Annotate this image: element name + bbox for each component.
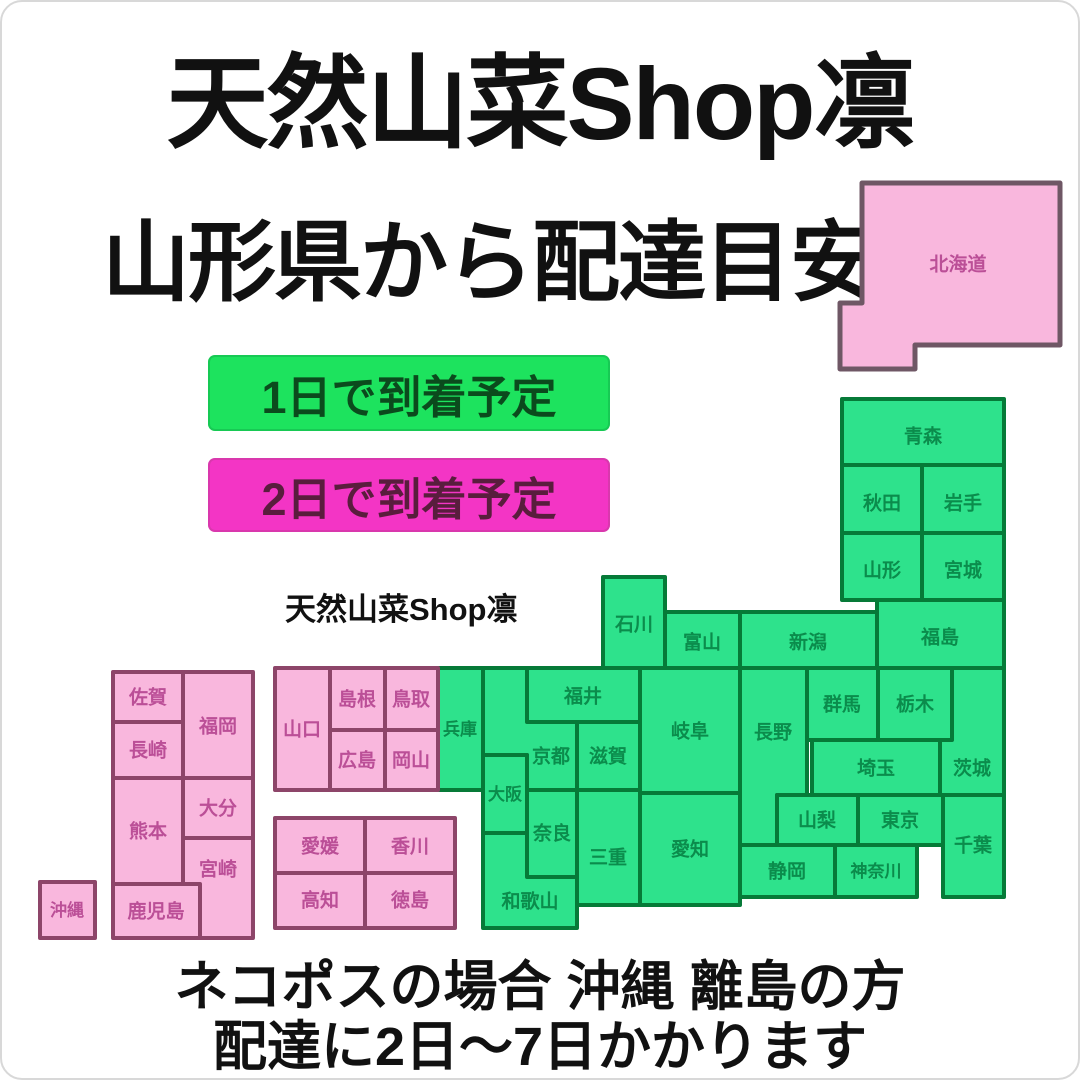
prefecture-akita: 秋田 (842, 465, 922, 533)
prefecture-osaka: 大阪 (483, 755, 527, 833)
prefecture-saitama: 埼玉 (812, 740, 940, 795)
prefecture-ehime: 愛媛 (275, 818, 365, 873)
prefecture-hyogo-label: 兵庫 (443, 719, 477, 739)
prefecture-chiba-label: 千葉 (954, 835, 993, 857)
prefecture-hiroshima: 広島 (330, 730, 385, 790)
prefecture-tokyo-label: 東京 (881, 809, 919, 832)
prefecture-kumamoto: 熊本 (113, 778, 183, 884)
prefecture-mie-label: 三重 (589, 847, 627, 869)
prefecture-kanagawa-label: 神奈川 (851, 861, 902, 881)
prefecture-shiga: 滋賀 (577, 722, 640, 790)
prefecture-hokkaido-shape (840, 183, 1060, 369)
prefecture-okinawa: 沖縄 (40, 882, 95, 938)
prefecture-fukui-label: 福井 (563, 685, 602, 708)
prefecture-miyazaki-label: 宮崎 (199, 858, 237, 881)
prefecture-ehime-label: 愛媛 (301, 835, 340, 858)
prefecture-kochi: 高知 (275, 873, 365, 928)
prefecture-gifu-label: 岐阜 (671, 720, 709, 743)
prefecture-shizuoka-label: 静岡 (768, 860, 806, 883)
prefecture-ibaraki-label: 茨城 (953, 757, 991, 780)
prefecture-kagawa: 香川 (365, 818, 455, 873)
prefecture-shimane-label: 島根 (338, 688, 376, 711)
prefecture-niigata-label: 新潟 (789, 631, 827, 654)
prefecture-oita-label: 大分 (199, 797, 237, 820)
prefecture-niigata: 新潟 (740, 612, 877, 668)
prefecture-yamaguchi: 山口 (275, 668, 330, 790)
prefecture-iwate-label: 岩手 (943, 492, 982, 515)
prefecture-tokushima-label: 徳島 (390, 889, 429, 912)
prefecture-yamanashi-label: 山梨 (798, 809, 837, 832)
prefecture-yamaguchi-label: 山口 (283, 719, 321, 741)
prefecture-fukui: 福井 (527, 668, 640, 722)
prefecture-chiba: 千葉 (943, 795, 1004, 897)
prefecture-yamanashi: 山梨 (777, 795, 858, 845)
prefecture-kagawa-label: 香川 (390, 836, 429, 858)
prefecture-shimane: 島根 (330, 668, 385, 730)
prefecture-okayama: 岡山 (385, 730, 438, 790)
prefecture-tochigi: 栃木 (878, 668, 952, 740)
prefecture-tokyo: 東京 (858, 795, 943, 845)
prefecture-iwate: 岩手 (922, 465, 1004, 533)
prefecture-shizuoka: 静岡 (740, 845, 835, 897)
prefecture-nara-label: 奈良 (532, 822, 571, 845)
prefecture-hyogo: 兵庫 (438, 668, 483, 790)
prefecture-osaka-label: 大阪 (488, 784, 522, 804)
prefecture-shiga-label: 滋賀 (589, 745, 627, 768)
prefecture-fukuoka: 福岡 (183, 672, 253, 778)
prefecture-tokushima: 徳島 (365, 873, 455, 928)
prefecture-aichi-label: 愛知 (671, 838, 709, 861)
prefecture-oita: 大分 (183, 778, 253, 838)
prefecture-hiroshima-label: 広島 (338, 749, 376, 772)
prefecture-aichi: 愛知 (640, 793, 740, 905)
prefecture-kanagawa: 神奈川 (835, 845, 917, 897)
prefecture-nara: 奈良 (527, 790, 577, 877)
prefecture-fukushima-label: 福島 (920, 626, 959, 649)
prefecture-saitama-label: 埼玉 (857, 757, 895, 780)
prefecture-toyama: 富山 (665, 612, 740, 668)
prefecture-miyagi-label: 宮城 (944, 559, 982, 582)
prefecture-toyama-label: 富山 (683, 631, 721, 654)
prefecture-tottori: 鳥取 (385, 668, 438, 730)
prefecture-gunma-label: 群馬 (822, 693, 861, 716)
prefecture-miyagi: 宮城 (922, 533, 1004, 600)
prefecture-ishikawa: 石川 (603, 577, 665, 668)
prefecture-kyoto-label: 京都 (532, 745, 570, 768)
prefecture-aomori-label: 青森 (904, 425, 943, 448)
japan-delivery-map: 北海道 青森 秋田 岩手 山形 宮城 福島 新潟 富山 石川 福井 (0, 0, 1080, 1080)
prefecture-okayama-label: 岡山 (392, 750, 430, 772)
prefecture-nagasaki: 長崎 (113, 722, 183, 778)
prefecture-okinawa-label: 沖縄 (50, 900, 84, 920)
prefecture-fukushima: 福島 (877, 600, 1004, 668)
prefecture-tochigi-label: 栃木 (896, 693, 935, 716)
prefecture-tottori-label: 鳥取 (392, 688, 430, 711)
prefecture-nagasaki-label: 長崎 (129, 739, 167, 762)
prefecture-aomori: 青森 (842, 399, 1004, 465)
prefecture-kagoshima: 鹿児島 (113, 884, 200, 938)
prefecture-saga-label: 佐賀 (128, 686, 167, 709)
prefecture-nagano-label: 長野 (754, 722, 792, 744)
prefecture-fukuoka-label: 福岡 (198, 715, 237, 738)
prefecture-saga: 佐賀 (113, 672, 183, 722)
footer-note-line2: 配達に2日〜7日かかります (0, 1002, 1080, 1081)
prefecture-ishikawa-label: 石川 (614, 615, 653, 636)
prefecture-mie: 三重 (577, 790, 640, 905)
prefecture-kochi-label: 高知 (301, 889, 339, 912)
prefecture-kagoshima-label: 鹿児島 (127, 900, 184, 923)
prefecture-akita-label: 秋田 (863, 492, 901, 515)
prefecture-wakayama-label: 和歌山 (501, 890, 558, 913)
prefecture-yamagata-label: 山形 (863, 560, 901, 582)
prefecture-gifu: 岐阜 (640, 668, 740, 793)
prefecture-yamagata: 山形 (842, 533, 922, 600)
prefecture-hokkaido: 北海道 (840, 183, 1060, 369)
prefecture-gunma: 群馬 (807, 668, 878, 740)
prefecture-kumamoto-label: 熊本 (129, 820, 167, 843)
prefecture-hokkaido-label: 北海道 (929, 253, 986, 276)
